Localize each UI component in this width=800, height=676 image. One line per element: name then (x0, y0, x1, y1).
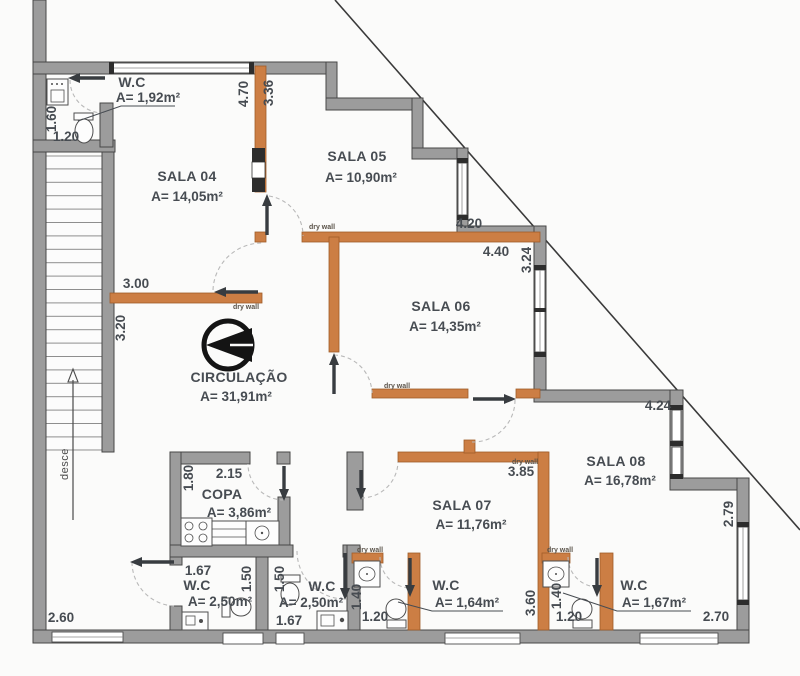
dim-label-10: 2.79 (721, 501, 736, 527)
window (223, 633, 263, 644)
wall-segment (412, 98, 423, 154)
stairs-direction-label: desce (59, 448, 71, 480)
dim-label-14: 2.15 (216, 466, 243, 481)
wall-segment (170, 545, 293, 557)
room-name-wc-2: W.C (308, 578, 335, 594)
drywall-label: dry wall (512, 459, 538, 466)
shaft (252, 162, 265, 178)
room-area-wc-entry: A= 1,92m² (116, 90, 181, 105)
column (252, 178, 265, 192)
dim-label-17: 1.50 (272, 566, 287, 592)
dim-label-8: 3.24 (519, 246, 534, 273)
room-name-sala-07: SALA 07 (432, 497, 491, 513)
wall-segment (256, 557, 268, 630)
counter-icon (212, 521, 246, 545)
room-name-circulacao: CIRCULAÇÃO (190, 368, 287, 385)
drywall-label: dry wall (233, 304, 259, 311)
drywall-segment (110, 293, 262, 303)
room-name-wc-3: W.C (432, 577, 459, 593)
floor-plan-page: W.C A= 1,92m² SALA 04 A= 14,05m² SALA 05… (0, 0, 800, 676)
window (276, 633, 304, 644)
dim-label-5: 3.20 (113, 315, 128, 341)
dim-label-6: 4.20 (456, 216, 482, 231)
room-area-sala-08: A= 16,78m² (584, 473, 656, 488)
dim-label-21: 3.60 (523, 590, 538, 616)
column (252, 148, 265, 162)
window (672, 410, 681, 441)
dim-label-12: 3.85 (508, 464, 535, 479)
window (640, 633, 718, 644)
columns (252, 148, 265, 192)
room-name-sala-04: SALA 04 (157, 168, 216, 184)
drywall-segment (329, 237, 339, 352)
stove-icon (181, 518, 212, 546)
drywall-segment (255, 232, 266, 242)
window (458, 163, 467, 215)
drywall-segment (600, 553, 613, 630)
room-area-sala-07: A= 11,76m² (436, 517, 507, 532)
drywall-segment (372, 389, 468, 398)
wall-segment (326, 98, 423, 110)
room-area-wc-3: A= 1,64m² (435, 595, 500, 610)
dim-label-13: 1.80 (181, 465, 196, 491)
room-name-sala-05: SALA 05 (327, 148, 386, 164)
sink-icon (47, 79, 68, 105)
dim-label-22: 1.40 (549, 583, 564, 609)
drywall-segment (516, 389, 540, 398)
window (672, 447, 681, 476)
dim-label-16: 1.50 (239, 566, 254, 592)
room-area-copa: A= 3,86m² (207, 505, 272, 520)
room-area-circulacao: A= 31,91m² (200, 389, 272, 404)
dim-label-20: 1.40 (349, 584, 364, 610)
wall-segment (170, 606, 182, 630)
wall-segment (170, 452, 250, 464)
wall-segment (277, 452, 290, 464)
dim-label-18: 1.67 (276, 613, 302, 628)
toilet-icon (386, 599, 406, 619)
room-area-sala-05: A= 10,90m² (325, 170, 397, 185)
dim-label-15: 1.67 (185, 563, 211, 578)
room-area-wc-2: A= 2,50m² (279, 595, 344, 610)
dim-label-4: 3.00 (123, 276, 149, 291)
dim-label-23: 1.20 (556, 609, 582, 624)
drywall-label: dry wall (309, 224, 335, 231)
drywall-label: dry wall (384, 383, 410, 390)
drywall-segment (538, 452, 549, 630)
dim-label-19: 1.20 (362, 609, 388, 624)
room-name-wc-1: W.C (183, 577, 210, 593)
dim-label-9: 4.24 (645, 398, 672, 413)
floor-plan: W.C A= 1,92m² SALA 04 A= 14,05m² SALA 05… (0, 0, 800, 676)
drywall-label: dry wall (547, 547, 573, 554)
room-area-sala-04: A= 14,05m² (151, 189, 223, 204)
wall-segment (33, 0, 46, 643)
room-area-wc-4: A= 1,67m² (622, 595, 687, 610)
room-name-wc-4: W.C (620, 577, 647, 593)
window (445, 633, 520, 644)
dim-label-24: 2.60 (48, 610, 74, 625)
dim-label-11: 2.70 (703, 609, 729, 624)
room-name-sala-08: SALA 08 (586, 453, 645, 469)
room-name-sala-06: SALA 06 (411, 298, 470, 314)
room-area-sala-06: A= 14,35m² (409, 319, 481, 334)
wall-segment (170, 452, 181, 557)
dim-label-2: 4.70 (236, 81, 251, 107)
dim-label-3: 3.36 (261, 79, 276, 106)
dim-label-1: 1.20 (53, 129, 79, 144)
drywall-label: dry wall (357, 547, 383, 554)
room-name-copa: COPA (202, 486, 243, 502)
room-area-wc-1: A= 2,50m² (188, 594, 253, 609)
dim-label-7: 4.40 (483, 244, 509, 259)
room-name-wc-entry: W.C (118, 74, 145, 90)
